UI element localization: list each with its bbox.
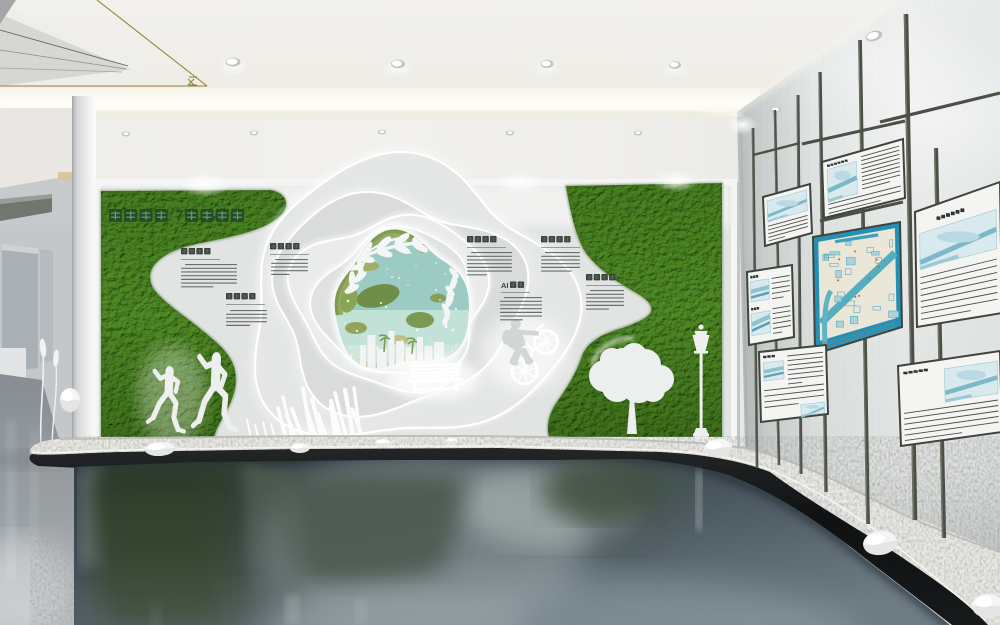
svg-text:AI: AI (501, 281, 508, 290)
svg-text:7: 7 (175, 208, 183, 224)
